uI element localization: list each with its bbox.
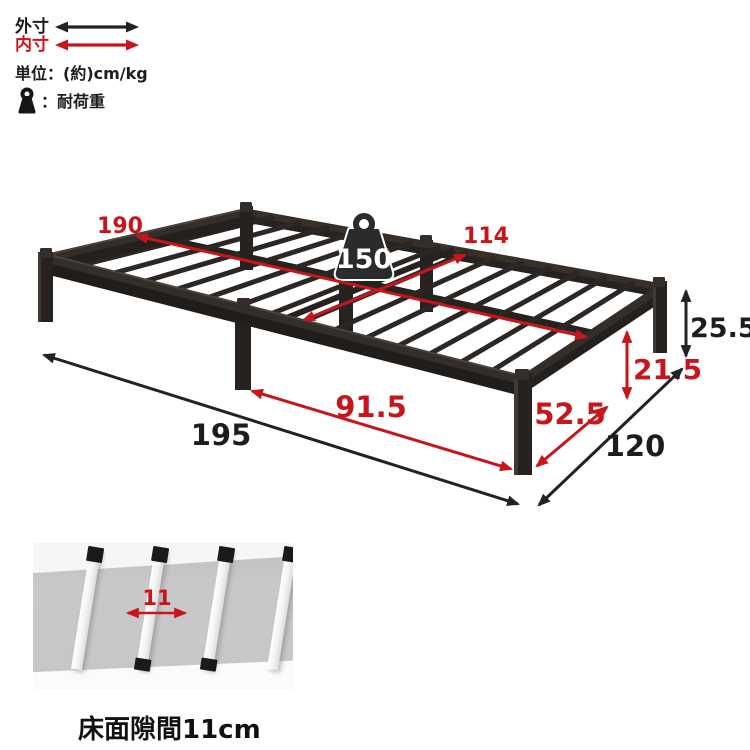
slat-gap-photo (33, 543, 293, 690)
legend-load-row: ：耐荷重 (15, 86, 148, 114)
dimension-diagram: 外寸 内寸 単位：(約)cm/kg ：耐荷重 (0, 0, 750, 750)
dim-total-height: 25.5 (686, 291, 750, 356)
bed-slats (78, 217, 635, 372)
slat (136, 548, 166, 670)
weight-icon: 150 (336, 216, 392, 278)
unit-label: 単位：(約)cm/kg (15, 60, 148, 84)
dim-leg-span-long-label: 91.5 (335, 390, 407, 424)
dim-inner-width: 114 (304, 224, 509, 320)
legend: 外寸 内寸 単位：(約)cm/kg ：耐荷重 (15, 18, 148, 114)
load-capacity-value: 150 (336, 244, 392, 275)
slat-cap (133, 657, 151, 671)
bed-leg (339, 270, 353, 342)
bed-frame (38, 202, 667, 475)
dim-leg-span-short: 52.5 (534, 397, 607, 466)
slat-cap (151, 546, 169, 563)
slat (267, 548, 293, 670)
inner-dim-arrow-icon (55, 38, 139, 52)
dim-inner-length: 190 (97, 214, 586, 337)
slat (202, 548, 232, 670)
legend-unit-row: 単位：(約)cm/kg (15, 62, 148, 82)
bed-leg (420, 240, 433, 312)
dim-inner-width-label: 114 (463, 224, 509, 249)
outer-dim-arrow-icon (55, 20, 139, 34)
dim-outer-length: 195 (44, 355, 518, 504)
bed-corner-legs (38, 206, 667, 475)
dim-outer-width: 120 (539, 369, 682, 505)
dim-leg-span-short-label: 52.5 (534, 397, 606, 431)
dim-inner-length-label: 190 (97, 214, 143, 239)
weight-mini-icon (15, 86, 39, 114)
dim-outer-length-label: 195 (191, 418, 252, 452)
slat-cap (217, 546, 235, 563)
dim-leg-span-long: 91.5 (252, 390, 511, 469)
dim-outer-width-label: 120 (605, 429, 666, 463)
slat-cap (282, 546, 293, 563)
dim-under-clearance: 21.5 (627, 332, 702, 398)
legend-outer-row: 外寸 (15, 18, 148, 36)
load-capacity-label: ：耐荷重 (41, 88, 105, 112)
outer-dim-label: 外寸 (15, 19, 49, 36)
bed-post-knobs (40, 202, 665, 380)
inner-dim-label: 内寸 (15, 37, 49, 54)
slat-cap (199, 657, 217, 671)
bed-leg (235, 310, 251, 390)
slat-gap-caption: 床面隙間11cm (78, 709, 261, 746)
legend-inner-row: 内寸 (15, 36, 148, 54)
dim-under-clearance-label: 21.5 (633, 353, 702, 386)
slat-cap (86, 546, 104, 563)
dim-total-height-label: 25.5 (690, 313, 750, 344)
